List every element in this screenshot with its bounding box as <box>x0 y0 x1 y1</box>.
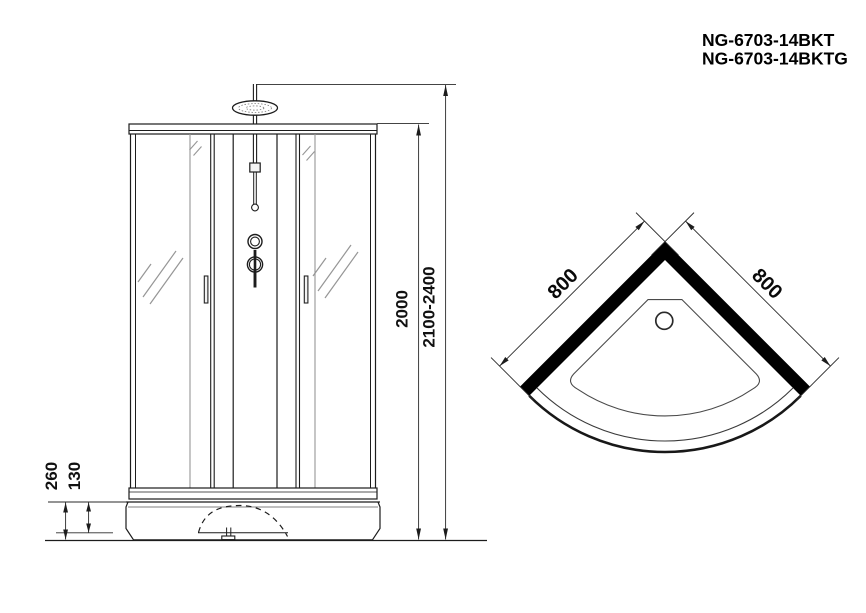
bottom-rail <box>129 488 377 499</box>
dimension-total-height: 2100-2400 <box>420 85 449 540</box>
glass-hatch <box>307 152 315 161</box>
model-number-1: NG-6703-14BKT <box>702 30 835 50</box>
ext-line-right-end <box>797 358 839 400</box>
model-numbers: NG-6703-14BKT NG-6703-14BKTG <box>702 30 848 69</box>
dim-label-260: 260 <box>42 462 61 490</box>
dim-label-130: 130 <box>65 462 84 490</box>
glass-panels <box>131 134 376 488</box>
tray-front-outer-arc <box>529 260 801 532</box>
arrow-down <box>86 524 91 533</box>
arrow-down <box>443 529 448 540</box>
front-view: 2000 2100-2400 260 130 <box>42 84 487 541</box>
arrow-up <box>416 125 421 136</box>
dim-label-800-left: 800 <box>544 264 583 303</box>
glass-reflections <box>138 141 358 304</box>
arrow-down <box>416 529 421 540</box>
foot-base <box>222 536 235 540</box>
ext-line-corner-h <box>636 213 678 255</box>
dimension-apron-height: 130 <box>65 462 91 533</box>
dim-label-2000: 2000 <box>393 290 412 328</box>
shower-controls <box>247 235 262 288</box>
arrow-up <box>63 503 68 513</box>
arrow-up <box>86 503 91 512</box>
pole-end-knob <box>252 204 259 211</box>
cabin-top-frame <box>129 124 377 134</box>
adjustable-foot <box>222 528 235 540</box>
glass-hatch <box>194 147 202 156</box>
right-door-handle <box>304 276 308 303</box>
drain <box>652 309 676 333</box>
tray-access-arch-dashed <box>199 506 288 537</box>
shower-tray <box>126 502 380 540</box>
glass-hatch <box>303 146 311 155</box>
technical-drawing: NG-6703-14BKT NG-6703-14BKTG <box>0 0 866 613</box>
dimension-cabin-height: 2000 <box>393 125 422 540</box>
plan-view: 800 800 <box>483 167 848 532</box>
control-ring-inner <box>251 237 260 246</box>
shower-head <box>233 101 278 115</box>
tray-apron-outline <box>126 502 380 540</box>
plan-wall-left <box>520 242 674 396</box>
shower-head-ellipse <box>233 101 278 115</box>
dim-label-800-right: 800 <box>747 264 786 303</box>
arrow-down <box>63 530 68 540</box>
bottom-rail-band <box>129 488 377 499</box>
left-door-handle <box>204 276 208 303</box>
arrow-up <box>443 85 448 96</box>
top-frame-band <box>129 124 377 134</box>
model-number-2: NG-6703-14BKTG <box>702 49 848 69</box>
ext-line-left-end <box>491 358 533 400</box>
plan-wall-right <box>656 242 810 396</box>
ext-line-corner-v <box>652 213 694 255</box>
glass-hatch <box>138 264 151 282</box>
glass-hatch <box>190 141 198 150</box>
pole-connector <box>250 163 260 172</box>
shower-cabin-spec-sheet: NG-6703-14BKT NG-6703-14BKTG <box>0 0 866 613</box>
dim-label-2100-2400: 2100-2400 <box>420 266 439 347</box>
